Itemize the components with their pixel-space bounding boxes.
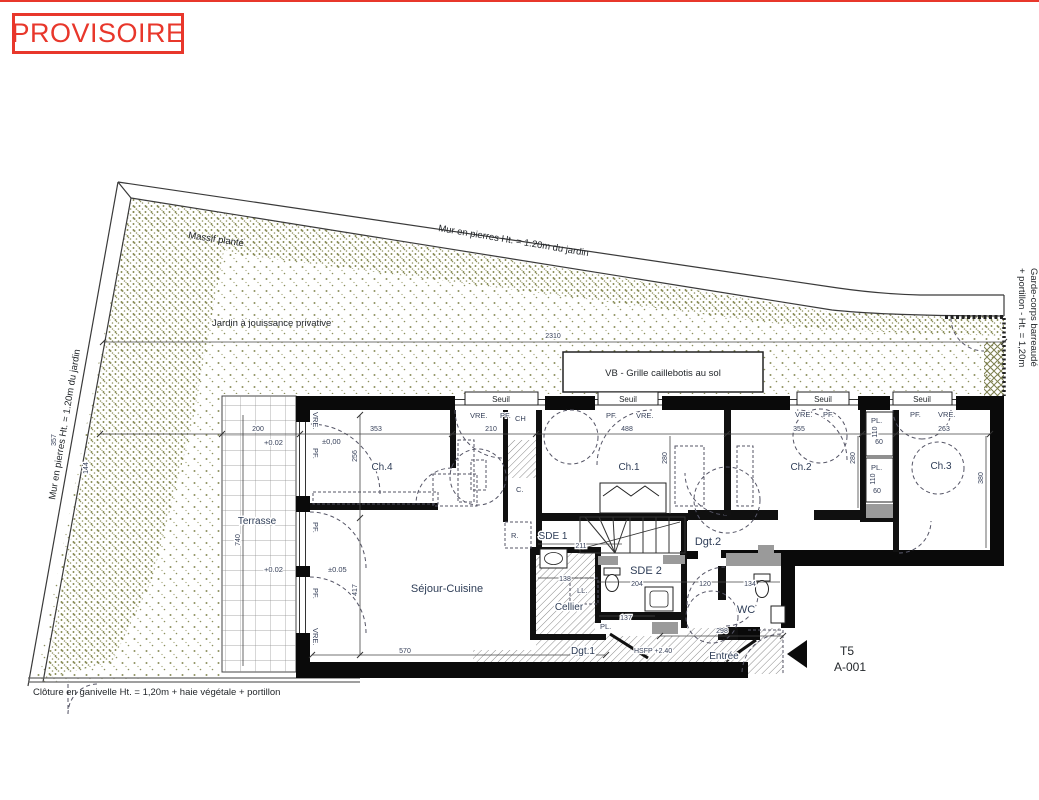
floor-plan-page: PROVISOIRE (0, 0, 1039, 800)
dim-110a: 110 (872, 426, 879, 437)
dim-280a: 280 (662, 452, 669, 464)
dim-2310: 2310 (545, 333, 561, 340)
interior-walls (310, 410, 899, 640)
dim-355: 355 (793, 426, 805, 433)
sink-icon-sde1 (540, 549, 567, 568)
dim-60a: 60 (875, 439, 883, 446)
tag-vre-west-2: VRE. (311, 628, 320, 646)
tag-pf-west-2: PF. (311, 522, 320, 533)
toilet-icon-wc (754, 574, 770, 598)
dim-204: 204 (631, 581, 643, 588)
dim-134: 134 (744, 581, 756, 588)
tag-ll: LL. (577, 586, 587, 595)
room-label-sde1: SDE 1 (539, 531, 568, 542)
tag-r: R. (511, 531, 519, 540)
tag-c: C. (516, 485, 524, 494)
dim-60b: 60 (873, 488, 881, 495)
room-label-ch1: Ch.1 (618, 462, 640, 473)
dim-417: 417 (352, 584, 359, 596)
dim-137: 137 (620, 615, 632, 622)
tag-hsfp: HSFP +2.40 (634, 648, 672, 655)
tag-vre-west-1: VRE. (311, 412, 320, 430)
tag-pf-west-3: PF. (311, 588, 320, 599)
room-label-dgt1: Dgt.1 (571, 646, 595, 657)
dim-211: 211 (575, 543, 586, 550)
seuil-label-3: Seuil (814, 395, 832, 404)
dim-380: 380 (978, 472, 985, 484)
tag-pl-1: PL. (871, 416, 882, 425)
dim-357: 357 (51, 434, 58, 446)
room-label-terrasse: Terrasse (238, 516, 277, 527)
entry-arrow-icon (787, 640, 807, 668)
tag-pf-3: PF. (823, 410, 834, 419)
tag-pl-strip: PL. (600, 622, 611, 631)
dim-120: 120 (699, 581, 711, 588)
dim-110b: 110 (870, 473, 877, 484)
tag-ch: CH (515, 414, 526, 423)
dim-280b: 280 (850, 452, 857, 464)
tag-vre-4: VRE. (938, 410, 956, 419)
dim-210: 210 (485, 426, 497, 433)
seuil-label-1: Seuil (492, 395, 510, 404)
bed-icon (600, 483, 666, 513)
dim-256: 256 (352, 450, 359, 462)
garde-corps-label-1: Garde-corps barreaudé (1028, 268, 1039, 367)
level-terrace-1: +0.02 (264, 438, 283, 447)
plan-drawing: Seuil Seuil Seuil Seuil (0, 0, 1039, 800)
vb-note-label: VB - Grille caillebotis au sol (605, 368, 721, 379)
cloture-label: Clôture en ganivelle Ht. = 1,20m + haie … (33, 687, 280, 698)
level-sejour: ±0.05 (328, 565, 347, 574)
unit-tag: T5 A-001 (787, 640, 866, 674)
tag-pf-west-1: PF. (311, 448, 320, 459)
dim-200: 200 (252, 426, 264, 433)
toilet-icon-sde2 (604, 568, 620, 592)
room-label-entree: Entrée (709, 651, 739, 662)
room-label-wc: WC (737, 604, 755, 616)
unit-type: T5 (840, 644, 854, 658)
tag-pf-2: PF. (606, 411, 617, 420)
room-label-ch3: Ch.3 (930, 461, 952, 472)
dim-488: 488 (621, 426, 633, 433)
tag-pf-1: PF. (500, 411, 511, 420)
dim-298: 298 (716, 628, 728, 635)
tag-vre-1: VRE. (470, 411, 488, 420)
dim-138: 138 (559, 576, 571, 583)
tag-vre-3: VRE. (795, 410, 813, 419)
tag-pf-4: PF. (910, 410, 921, 419)
room-label-ch2: Ch.2 (790, 462, 812, 473)
level-0: ±0,00 (322, 437, 341, 446)
room-label-sejour: Séjour-Cuisine (411, 583, 483, 595)
room-label-ch4: Ch.4 (371, 462, 393, 473)
tag-vre-2: VRE. (636, 411, 654, 420)
tag-pl-2: PL. (871, 463, 882, 472)
room-label-cellier: Cellier (555, 602, 584, 613)
seuil-label-4: Seuil (913, 395, 931, 404)
wc-basin (771, 606, 785, 623)
unit-code: A-001 (834, 660, 866, 674)
shaft-floor (508, 440, 536, 478)
room-label-sde2: SDE 2 (630, 565, 662, 577)
sink-icon-sde2 (645, 587, 673, 611)
garde-corps-label-2: + portillon - Ht. = 1,20m (1016, 268, 1027, 367)
jardin-label: Jardin à jouissance privative (212, 318, 331, 329)
dim-263: 263 (938, 426, 950, 433)
seuil-label-2: Seuil (619, 395, 637, 404)
terrace (222, 396, 296, 672)
dim-570: 570 (399, 648, 411, 655)
level-terrace-2: +0.02 (264, 565, 283, 574)
dim-144: 144 (83, 462, 90, 474)
dim-353: 353 (370, 426, 382, 433)
hedge-crosshatch (984, 342, 1004, 398)
room-label-dgt2: Dgt.2 (695, 536, 721, 548)
dim-740: 740 (235, 534, 242, 546)
duct (866, 504, 893, 518)
